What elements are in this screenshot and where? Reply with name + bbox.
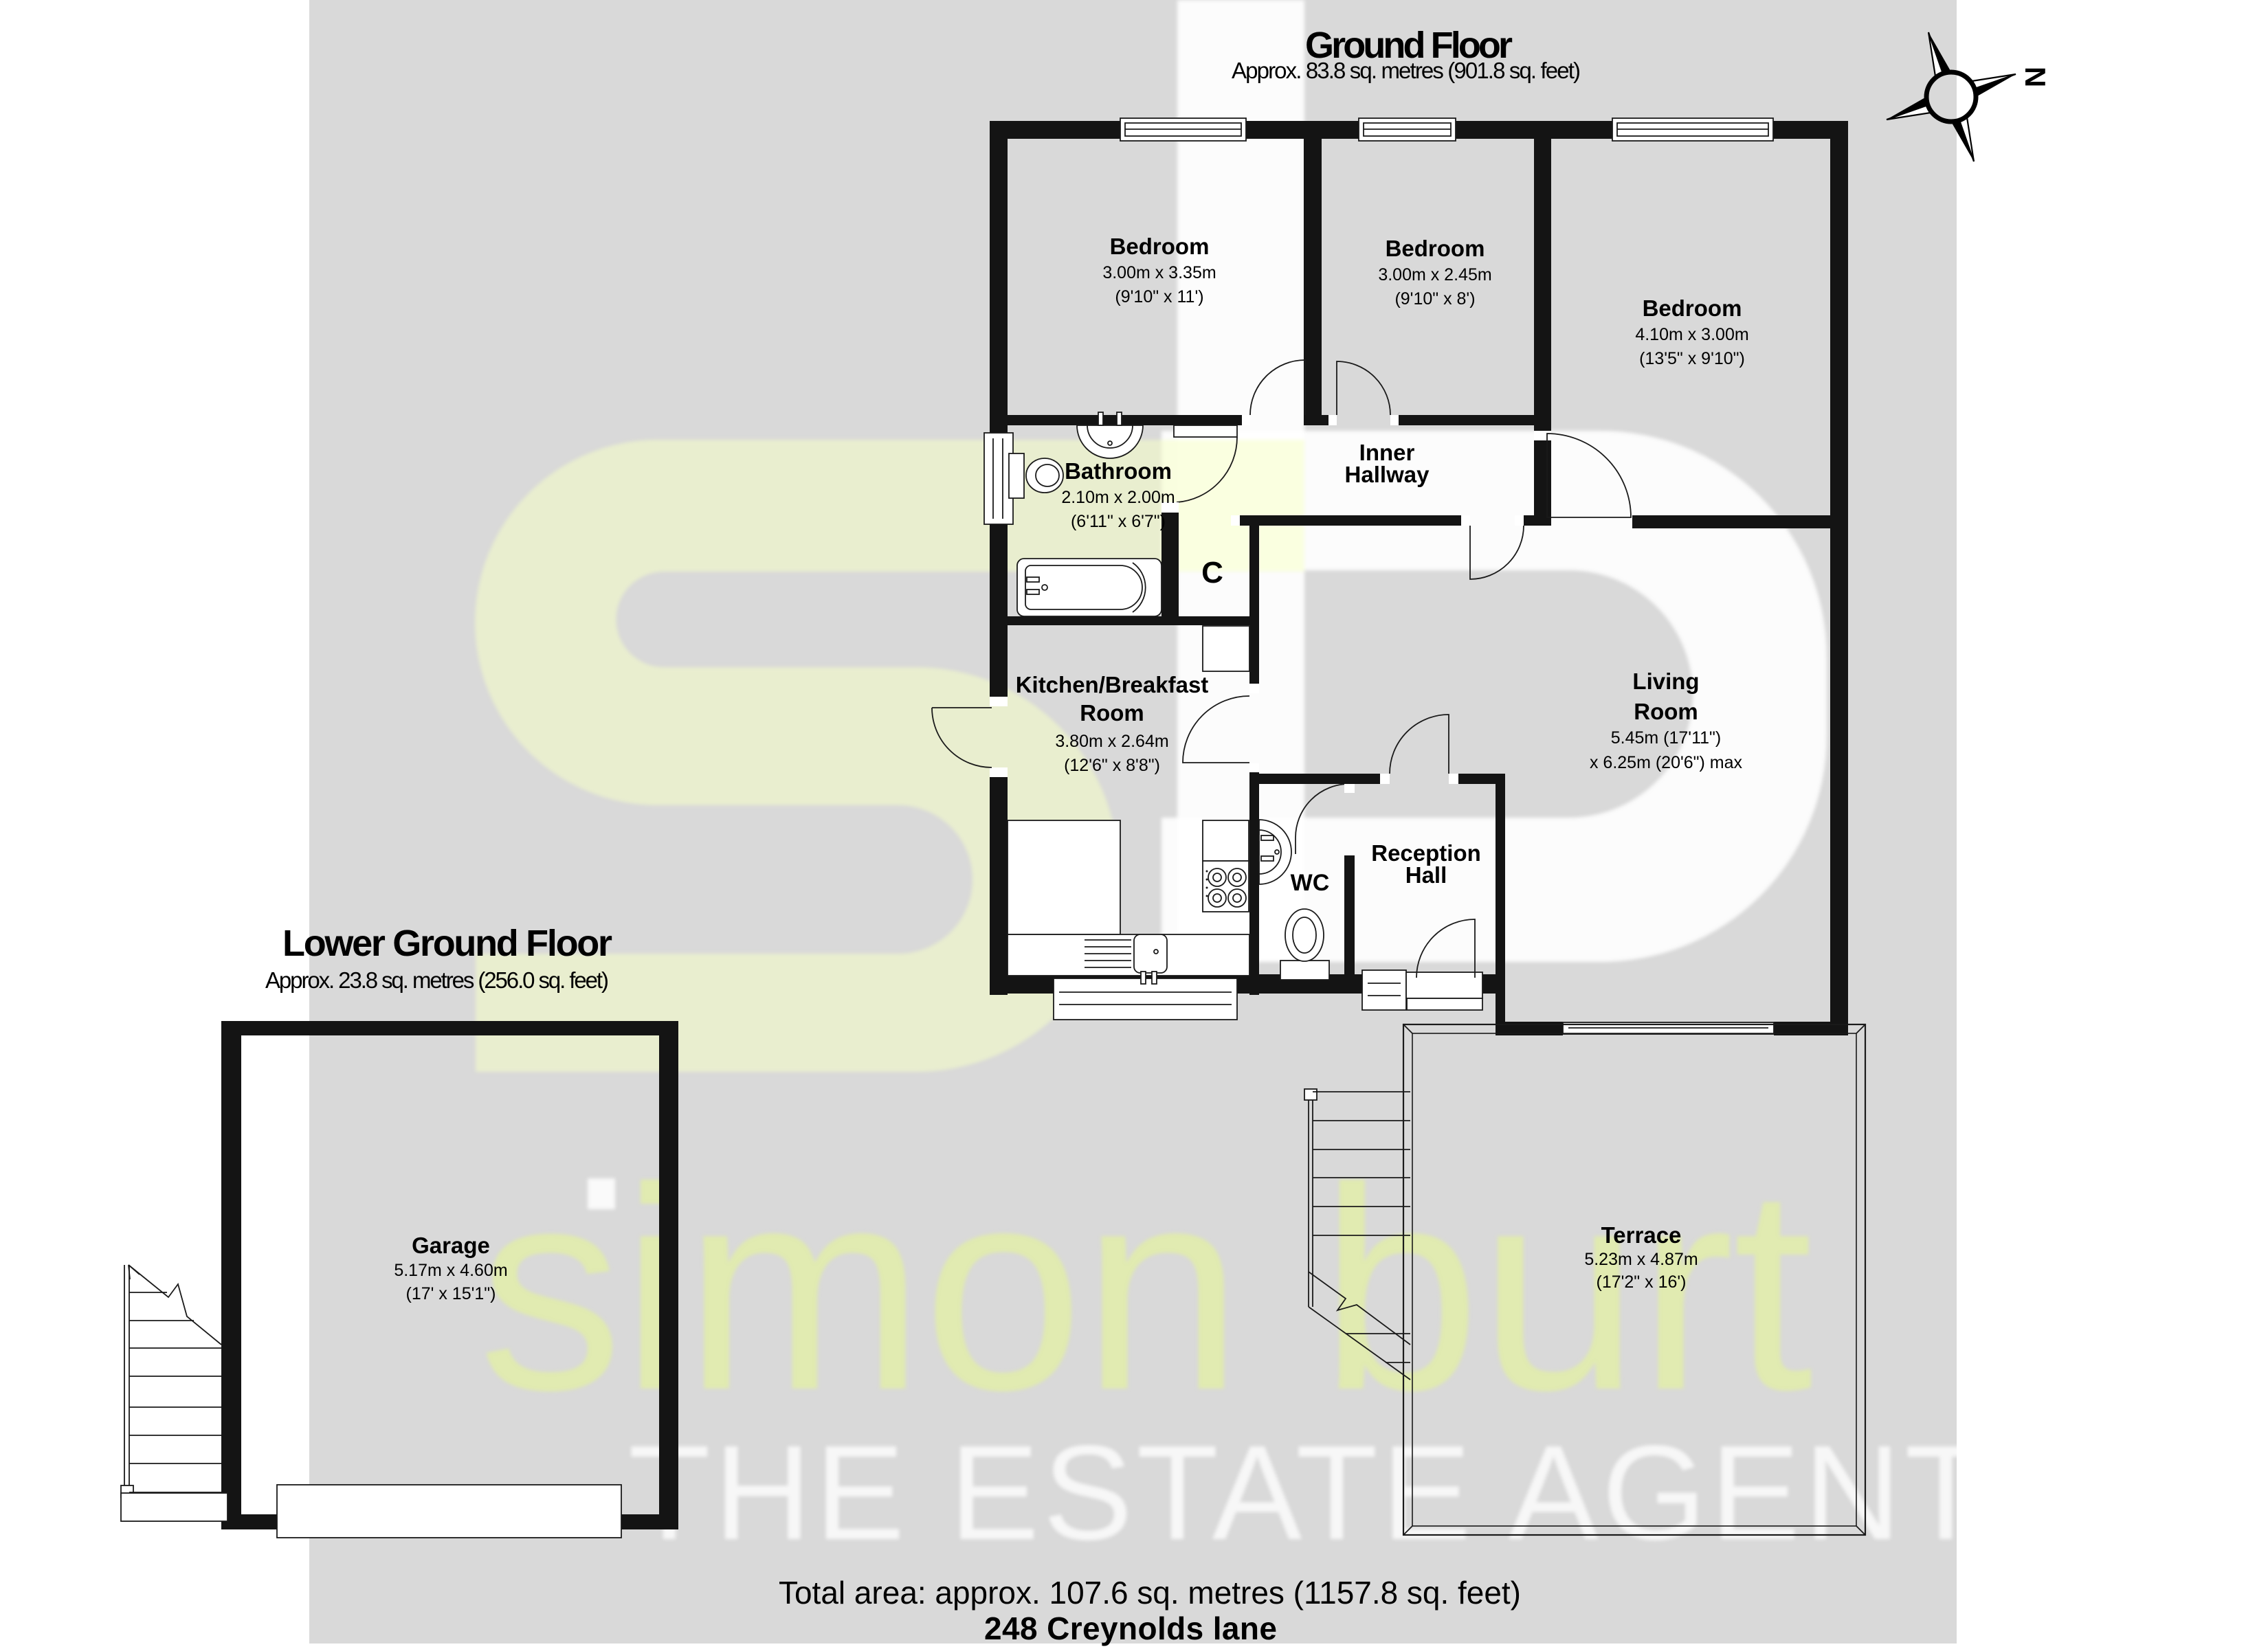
svg-text:(9'10" x 8'): (9'10" x 8') xyxy=(1394,289,1475,309)
svg-text:Room: Room xyxy=(1080,700,1144,726)
svg-text:3.00m x 2.45m: 3.00m x 2.45m xyxy=(1378,265,1491,284)
svg-text:Living: Living xyxy=(1632,669,1699,694)
svg-text:Bedroom: Bedroom xyxy=(1643,295,1742,321)
svg-text:(17' x 15'1"): (17' x 15'1") xyxy=(406,1284,496,1303)
svg-text:Kitchen/Breakfast: Kitchen/Breakfast xyxy=(1016,672,1209,697)
svg-text:Approx. 23.8 sq. metres (256.0: Approx. 23.8 sq. metres (256.0 sq. feet) xyxy=(265,967,609,993)
svg-text:Room: Room xyxy=(1634,699,1698,724)
svg-text:(6'11" x 6'7"): (6'11" x 6'7") xyxy=(1071,512,1166,531)
svg-text:Hallway: Hallway xyxy=(1345,462,1430,487)
svg-text:(13'5" x 9'10"): (13'5" x 9'10") xyxy=(1639,349,1745,368)
svg-text:5.17m x 4.60m: 5.17m x 4.60m xyxy=(394,1261,507,1280)
svg-text:Bathroom: Bathroom xyxy=(1065,458,1172,484)
svg-text:5.23m x 4.87m: 5.23m x 4.87m xyxy=(1584,1250,1698,1269)
svg-text:Bedroom: Bedroom xyxy=(1386,236,1485,261)
svg-text:3.00m x 3.35m: 3.00m x 3.35m xyxy=(1102,263,1216,282)
svg-text:THE ESTATE AGENT: THE ESTATE AGENT xyxy=(628,1417,1987,1568)
svg-text:2.10m x 2.00m: 2.10m x 2.00m xyxy=(1061,488,1175,507)
svg-text:3.80m x 2.64m: 3.80m x 2.64m xyxy=(1055,732,1168,751)
svg-text:Terrace: Terrace xyxy=(1601,1222,1682,1248)
svg-text:4.10m x 3.00m: 4.10m x 3.00m xyxy=(1635,325,1748,344)
svg-text:5.45m (17'11"): 5.45m (17'11") xyxy=(1611,728,1722,748)
svg-text:Total area: approx. 107.6 sq.: Total area: approx. 107.6 sq. metres (11… xyxy=(779,1575,1521,1611)
svg-text:Garage: Garage xyxy=(412,1233,490,1258)
svg-text:Approx. 83.8 sq. metres (901.8: Approx. 83.8 sq. metres (901.8 sq. feet) xyxy=(1232,58,1581,83)
svg-text:Lower Ground Floor: Lower Ground Floor xyxy=(282,923,612,964)
svg-text:C: C xyxy=(1201,556,1223,590)
svg-text:WC: WC xyxy=(1291,870,1330,896)
svg-text:(17'2" x 16'): (17'2" x 16') xyxy=(1597,1272,1687,1292)
svg-text:x 6.25m (20'6") max: x 6.25m (20'6") max xyxy=(1590,753,1743,772)
svg-text:248 Creynolds lane: 248 Creynolds lane xyxy=(984,1611,1277,1646)
svg-text:(9'10" x 11'): (9'10" x 11') xyxy=(1115,287,1203,306)
svg-text:Hall: Hall xyxy=(1405,862,1447,888)
svg-text:N: N xyxy=(2019,67,2052,87)
svg-text:(12'6" x 8'8"): (12'6" x 8'8") xyxy=(1064,756,1160,775)
svg-text:Bedroom: Bedroom xyxy=(1110,234,1210,259)
